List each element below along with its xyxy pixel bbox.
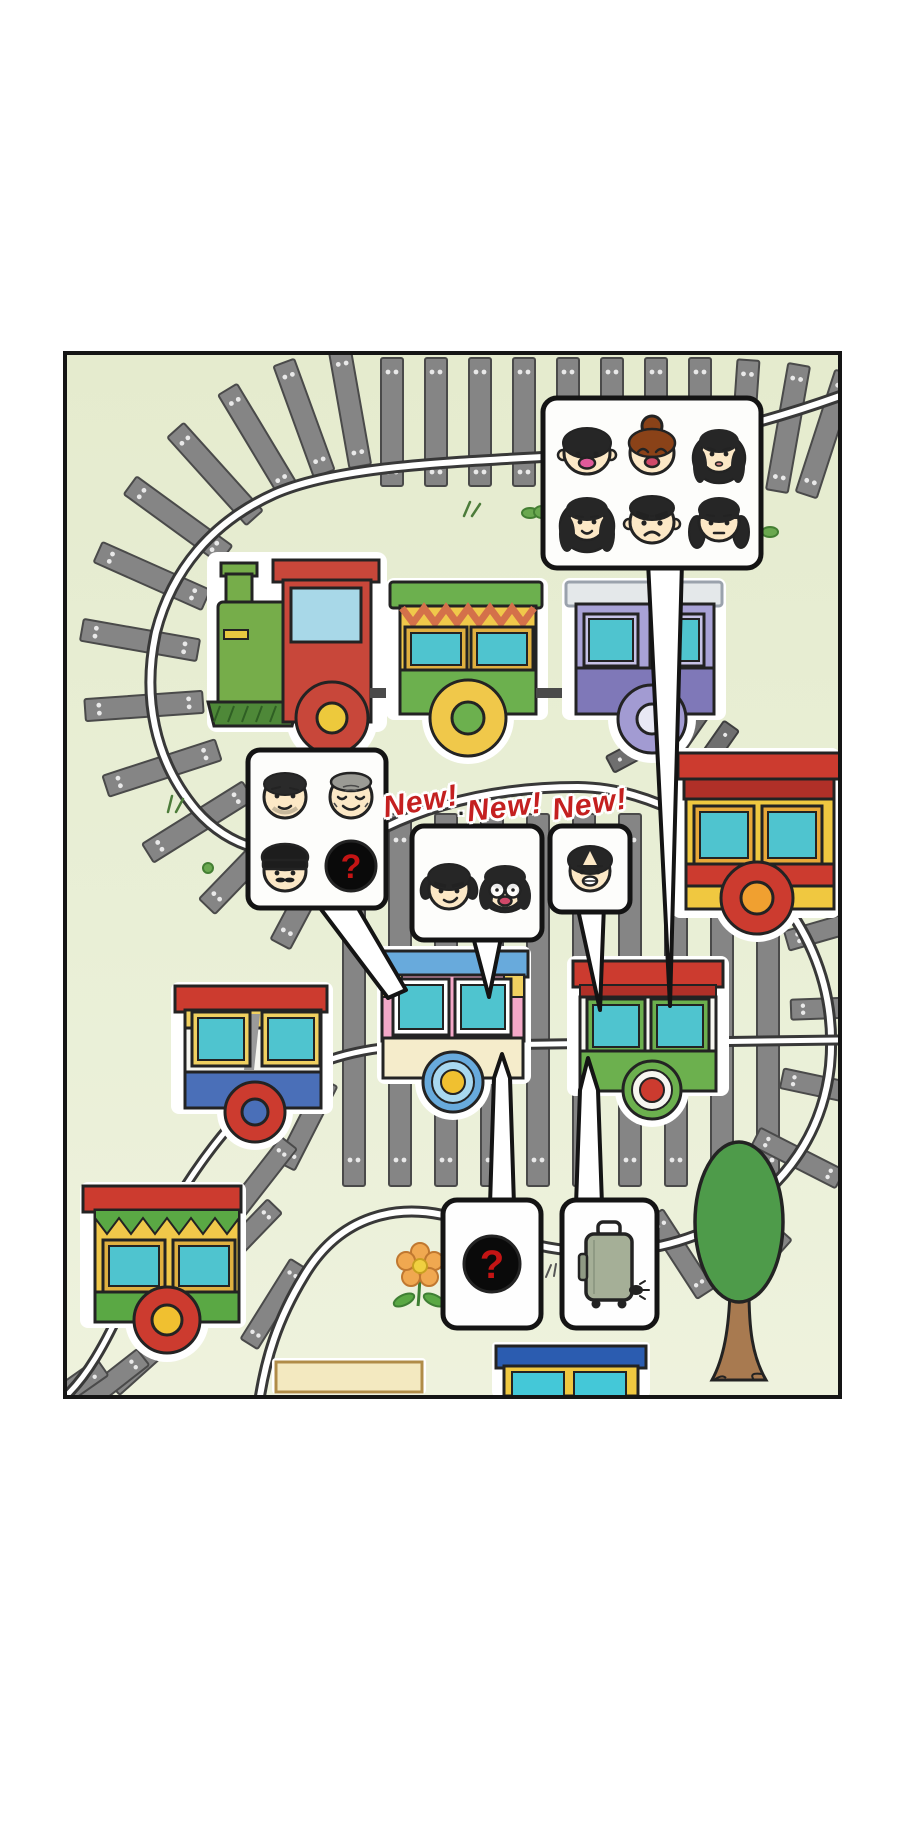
new-pair-bubble: [412, 826, 542, 940]
grass-bush: [203, 863, 213, 873]
face-elderly-man: [330, 773, 372, 818]
wheel-hub: [242, 1099, 268, 1125]
car-roof: [175, 986, 327, 1012]
engine-stripe: [224, 630, 248, 639]
comic-page: ?: [0, 0, 900, 1825]
tree: [695, 1142, 783, 1380]
wheel-hub: [152, 1305, 182, 1335]
car-roof: [390, 582, 542, 608]
wheel-hub: [452, 702, 484, 734]
window: [477, 633, 527, 665]
scene-art: ?: [67, 355, 838, 1395]
face-beanie-man: [262, 844, 308, 891]
badge-separator-dot: ·: [458, 801, 465, 827]
flower-leaf: [392, 1291, 416, 1309]
track-tie: [142, 781, 254, 862]
car-roof: [566, 582, 722, 606]
wheel-hub: [441, 1070, 465, 1094]
flower-center: [413, 1259, 427, 1273]
window: [657, 1005, 703, 1047]
window: [411, 633, 461, 665]
illustration-panel: ?: [63, 351, 842, 1399]
tree-canopy: [695, 1142, 783, 1302]
family-roster-bubble: [543, 398, 761, 568]
window: [268, 1018, 314, 1060]
window: [768, 812, 816, 858]
tail-question-box: [490, 1054, 514, 1205]
window: [198, 1018, 244, 1060]
window: [700, 812, 748, 858]
face-longhair-woman: [559, 497, 615, 552]
engine-boiler: [218, 602, 288, 714]
car-roof: [384, 951, 528, 977]
face-middlepart-man: [568, 846, 612, 891]
car-green-yellow: [386, 578, 576, 764]
face-glasses-girl: [479, 865, 531, 912]
window: [461, 985, 505, 1029]
car-roof: [276, 1362, 422, 1392]
flower: [392, 1243, 446, 1309]
cargo-question-mark: ?: [480, 1243, 504, 1287]
car-roof: [83, 1186, 241, 1212]
grass-bush: [762, 527, 778, 537]
track-tie: [80, 619, 200, 661]
track-tie: [329, 355, 371, 468]
train-engine: [207, 552, 400, 764]
track-tie: [513, 358, 535, 486]
roster-question-mark: ?: [341, 848, 362, 886]
window: [589, 619, 633, 661]
window: [109, 1246, 159, 1286]
question-box: ?: [443, 1200, 541, 1328]
grass-tuft: [546, 1264, 556, 1277]
track-tie: [84, 691, 203, 721]
window: [574, 1372, 626, 1395]
wheel-hub: [640, 1078, 664, 1102]
car-partial-blue: [492, 1342, 650, 1395]
face-stubble-man: [264, 773, 306, 818]
wheel-hub: [741, 882, 773, 914]
car-periwinkle: [562, 578, 726, 763]
unknown-member-slot: ?: [326, 841, 376, 891]
window: [179, 1246, 229, 1286]
car-yellow-right: [672, 748, 838, 942]
engine-wheel-hub: [317, 703, 347, 733]
car-roof: [678, 753, 838, 779]
car-roof-band: [684, 779, 834, 799]
window: [512, 1372, 564, 1395]
new-single-bubble: [550, 826, 630, 912]
car-partial-tan: [272, 1358, 426, 1394]
paw-detail: [629, 1285, 643, 1295]
suitcase-box: [562, 1200, 657, 1328]
grass-tuft: [464, 502, 480, 516]
face-longhair-girl: [693, 429, 745, 483]
elder-roster-bubble: ?: [248, 750, 386, 908]
engine-window: [291, 588, 361, 642]
